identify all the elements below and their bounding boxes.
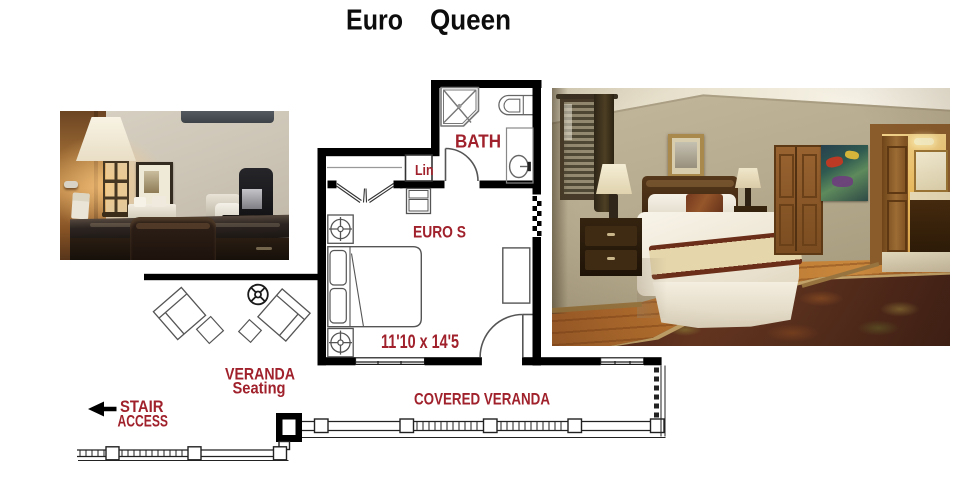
svg-text:COVERED VERANDA: COVERED VERANDA <box>414 390 550 409</box>
svg-text:11'10 x 14'5: 11'10 x 14'5 <box>381 332 459 353</box>
svg-text:ACCESS: ACCESS <box>118 412 169 431</box>
svg-text:BATH: BATH <box>455 131 501 152</box>
svg-text:Lin: Lin <box>415 163 434 179</box>
svg-text:EURO S: EURO S <box>413 223 466 242</box>
svg-text:Seating: Seating <box>233 380 286 398</box>
